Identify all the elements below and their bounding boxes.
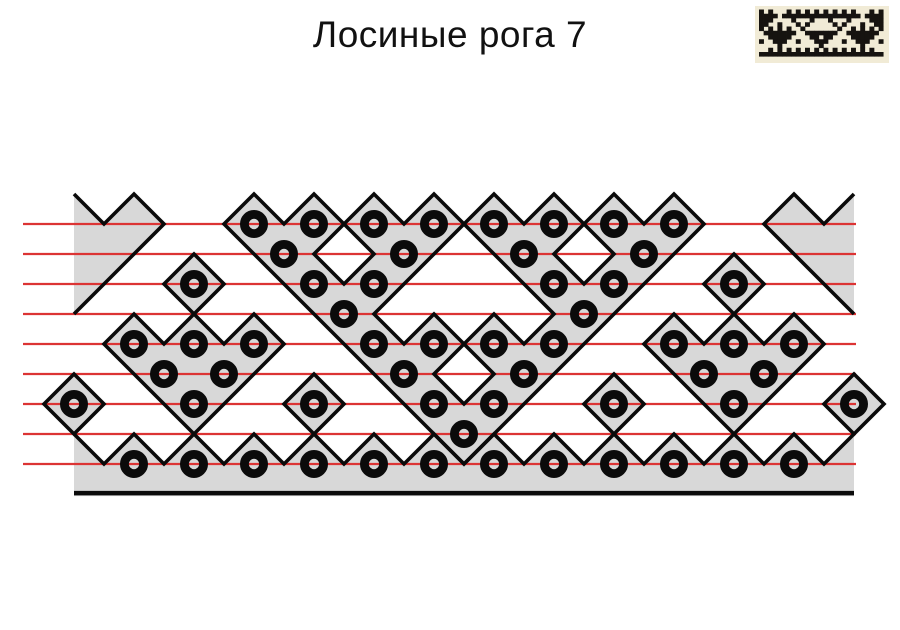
pattern-page: Лосиные рога 7 xyxy=(0,0,900,630)
ornament-diagram xyxy=(0,0,900,630)
